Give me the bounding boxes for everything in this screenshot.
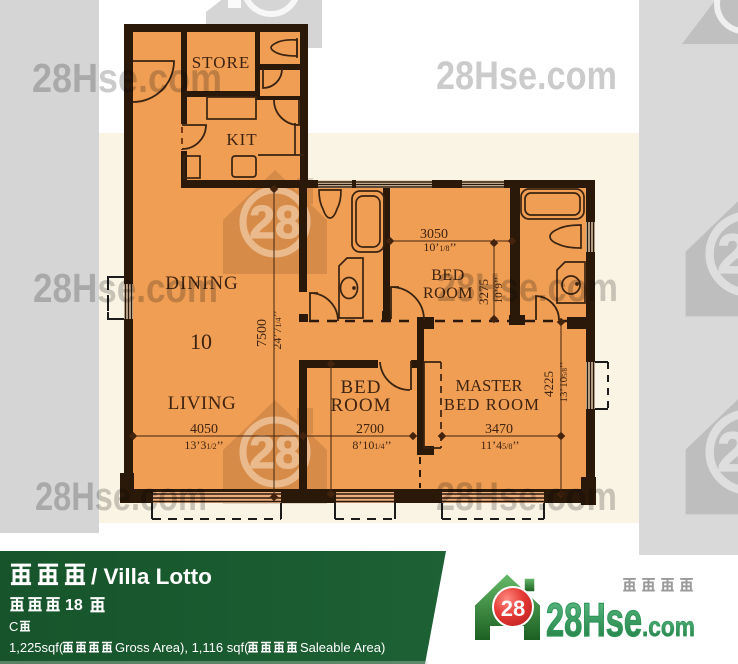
svg-text:10: 10 xyxy=(190,329,212,354)
svg-text:28: 28 xyxy=(501,596,525,621)
svg-text:18: 18 xyxy=(65,597,83,614)
svg-text:28Hse.com: 28Hse.com xyxy=(437,266,618,310)
svg-text:MASTER: MASTER xyxy=(456,376,523,395)
svg-text:Gross Area), 1,116 sqf(: Gross Area), 1,116 sqf( xyxy=(115,640,249,655)
svg-text:28Hse.com: 28Hse.com xyxy=(436,475,617,519)
svg-text:28Hse.com: 28Hse.com xyxy=(32,55,222,101)
svg-text:28Hse: 28Hse xyxy=(546,593,642,646)
svg-text:4225: 4225 xyxy=(541,371,556,397)
svg-text:KIT: KIT xyxy=(226,130,257,149)
svg-text:ROOM: ROOM xyxy=(330,395,391,416)
svg-text:Saleable Area): Saleable Area) xyxy=(300,640,385,655)
svg-text:8’101/4’’: 8’101/4’’ xyxy=(352,438,391,452)
svg-text:2700: 2700 xyxy=(356,422,384,437)
svg-text:28Hse.com: 28Hse.com xyxy=(436,54,617,98)
svg-text:3470: 3470 xyxy=(485,422,513,437)
svg-text:13’105/8’’: 13’105/8’’ xyxy=(558,361,570,402)
svg-text:28Hse.com: 28Hse.com xyxy=(35,475,207,519)
svg-text:.com: .com xyxy=(642,611,695,642)
svg-text:4050: 4050 xyxy=(190,422,218,437)
svg-text:28Hse.com: 28Hse.com xyxy=(33,265,218,311)
svg-text:7500: 7500 xyxy=(255,319,270,347)
svg-text:1,225sqf(: 1,225sqf( xyxy=(9,640,64,655)
svg-text:24’71/4’’: 24’71/4’’ xyxy=(270,310,284,349)
svg-text:LIVING: LIVING xyxy=(168,393,236,414)
svg-text:13’31/2’’: 13’31/2’’ xyxy=(184,438,223,452)
svg-text:C: C xyxy=(9,619,18,634)
svg-text:BED ROOM: BED ROOM xyxy=(444,395,540,414)
svg-text:11’45/8’’: 11’45/8’’ xyxy=(481,438,520,452)
svg-text:/ Villa Lotto: / Villa Lotto xyxy=(91,564,212,589)
